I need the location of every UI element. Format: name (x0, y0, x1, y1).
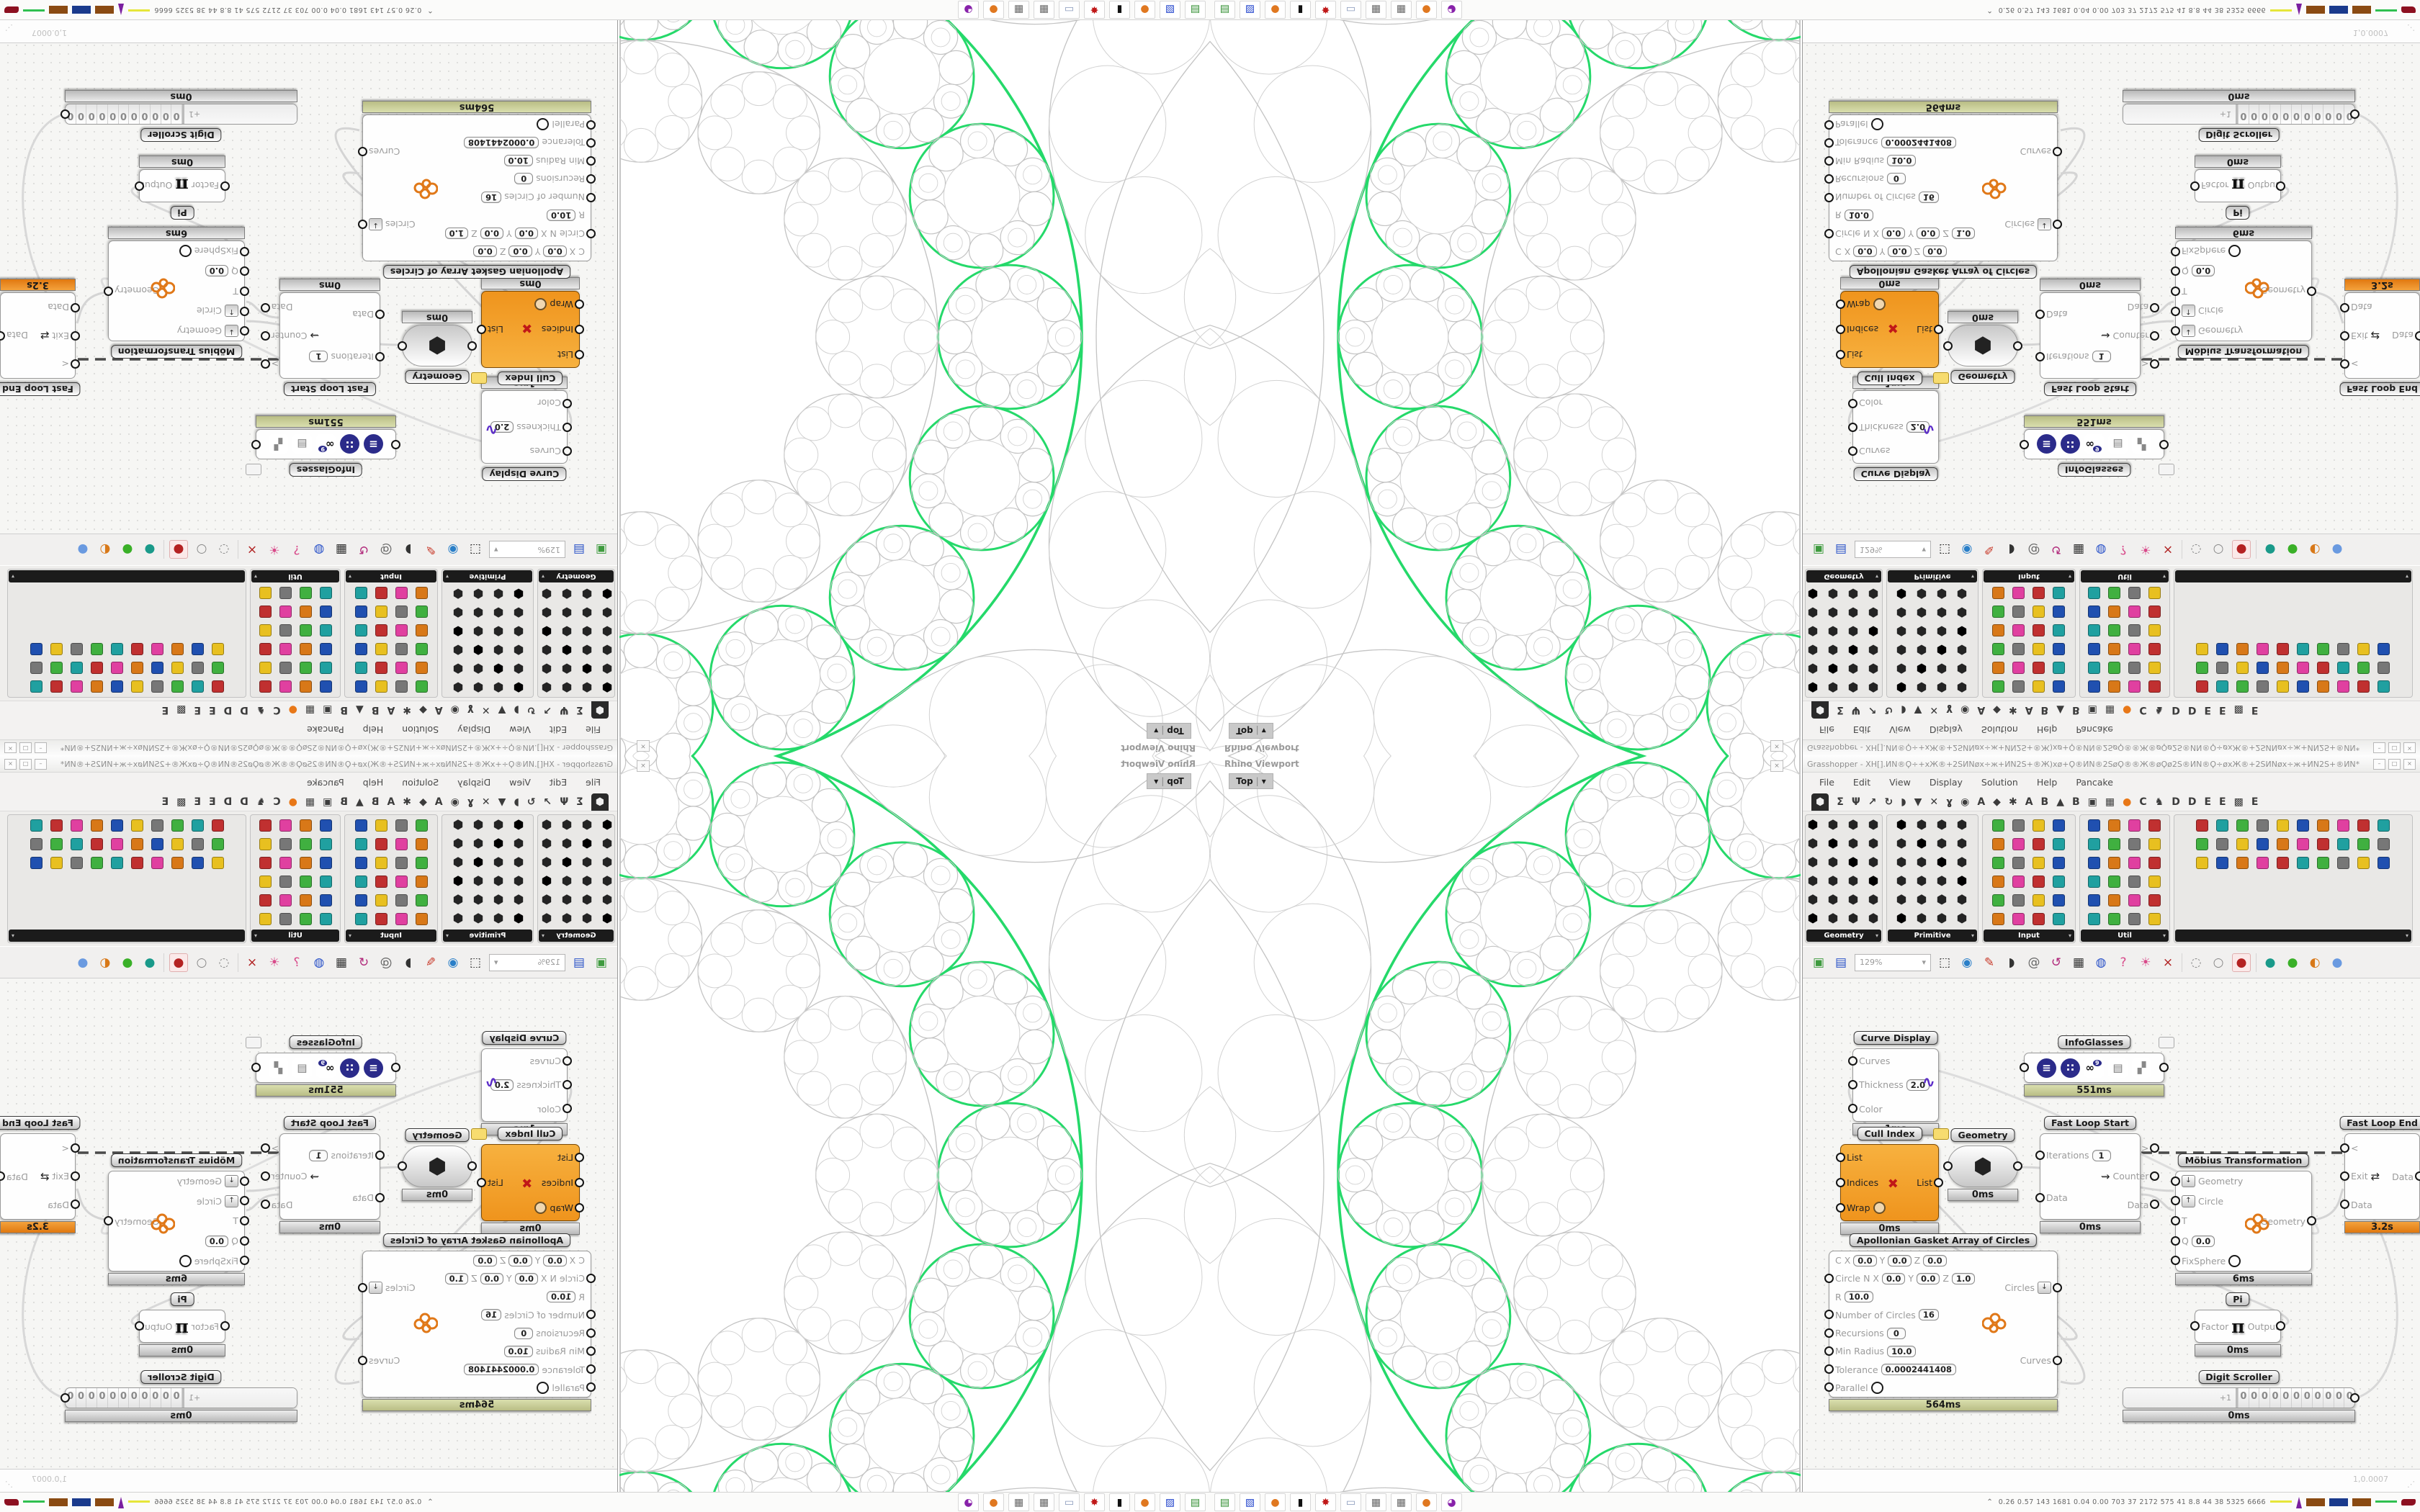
component-icon[interactable] (2009, 854, 2027, 871)
component-icon[interactable]: ⬢ (599, 622, 615, 639)
component-icon[interactable] (48, 816, 66, 834)
component-tab-22[interactable]: D (2172, 793, 2180, 811)
component-icon[interactable] (2085, 854, 2102, 871)
component-icon[interactable] (129, 678, 146, 696)
component-icon[interactable]: ⬢ (1824, 641, 1842, 658)
component-icon[interactable]: ⬢ (449, 678, 467, 696)
menu-help[interactable]: Help (2027, 777, 2067, 788)
taskbar-firefox-icon[interactable]: ● (1134, 1, 1155, 19)
component-icon[interactable]: ⬢ (558, 678, 575, 696)
input-grip[interactable] (2171, 1216, 2180, 1225)
find-icon[interactable]: ◍ (2092, 954, 2110, 971)
component-icon[interactable] (210, 660, 227, 677)
component-icon[interactable] (28, 816, 45, 834)
component-icon[interactable]: ⬢ (490, 641, 507, 658)
component-tab-12[interactable]: ✱ (403, 701, 411, 719)
scroller-digit[interactable]: 0 (2291, 104, 2302, 124)
param-value[interactable]: 0.0 (1917, 1273, 1940, 1284)
component-icon[interactable] (413, 622, 431, 639)
component-tab-1[interactable]: Σ (576, 793, 583, 811)
taskbar-firefox-icon[interactable]: ● (1134, 1493, 1155, 1511)
input-grip[interactable] (586, 1274, 596, 1283)
node-label[interactable]: InfoGlasses (290, 463, 362, 477)
component-icon[interactable]: ⬢ (1805, 622, 1821, 639)
component-icon[interactable] (353, 641, 370, 658)
node-label[interactable]: Pi (2226, 206, 2249, 220)
component-icon[interactable]: ⬢ (1865, 835, 1882, 852)
param-value[interactable]: 0 (1887, 173, 1906, 184)
component-icon[interactable] (2274, 660, 2291, 677)
component-icon[interactable]: ⬢ (558, 816, 575, 834)
boolean-toggle[interactable] (537, 118, 549, 130)
component-icon[interactable] (2085, 678, 2102, 696)
node-mobius[interactable]: Möbius Transformation↓Geometry↑CircleTQ0… (108, 1171, 245, 1272)
output-grip[interactable] (2307, 287, 2316, 296)
node-body[interactable]: <Exit⇄DataData (0, 1133, 76, 1220)
component-icon[interactable] (373, 660, 390, 677)
component-icon[interactable] (68, 678, 86, 696)
component-icon[interactable]: ⬢ (510, 585, 527, 602)
component-icon[interactable] (2050, 854, 2067, 871)
projector-icon[interactable]: ◗ (400, 541, 417, 559)
component-icon[interactable] (189, 678, 207, 696)
component-icon[interactable]: ⬢ (490, 622, 507, 639)
component-tab-12[interactable]: ✱ (2009, 701, 2017, 719)
input-grip[interactable] (71, 1171, 80, 1181)
component-tab-6[interactable]: ▼ (1914, 701, 1922, 719)
component-icon[interactable]: ⬢ (1953, 641, 1971, 658)
node-pi[interactable]: PiFactorπOutput0ms (2195, 1310, 2281, 1343)
output-grip[interactable] (398, 341, 407, 351)
node-body[interactable]: C X0.0Y0.0Z0.0CircleN X0.0Y0.0Z1.0R10.0N… (1829, 114, 2058, 261)
param-value[interactable]: 16 (481, 1309, 501, 1320)
component-icon[interactable] (2125, 641, 2143, 658)
component-icon[interactable] (297, 585, 315, 602)
input-grip[interactable] (2171, 247, 2180, 256)
node-mobius[interactable]: Möbius Transformation↓Geometry↑CircleTQ0… (108, 240, 245, 341)
component-icon[interactable] (2105, 816, 2123, 834)
component-tab-8[interactable]: ɣ (1946, 701, 1953, 719)
output-grip[interactable] (358, 220, 367, 230)
component-icon[interactable]: ⬢ (538, 603, 555, 621)
component-icon[interactable] (2314, 835, 2331, 852)
puzzle-icon[interactable]: ▞ (269, 435, 288, 454)
component-icon[interactable]: ⬢ (1845, 835, 1862, 852)
chevron-down-icon[interactable]: ▾ (1875, 573, 1878, 580)
package-icon[interactable]: ? (2115, 954, 2132, 971)
component-icon[interactable] (28, 854, 45, 871)
component-icon[interactable] (129, 835, 146, 852)
node-fast-loop-end[interactable]: Fast Loop End<Exit⇄DataData3.2s (2344, 1133, 2420, 1220)
component-icon[interactable]: ⬢ (470, 873, 487, 890)
component-icon[interactable] (297, 678, 315, 696)
component-icon[interactable]: ⬢ (538, 641, 555, 658)
gha-icon[interactable]: ↺ (2048, 541, 2065, 559)
component-icon[interactable] (1989, 641, 2007, 658)
input-grip[interactable] (240, 1216, 249, 1225)
gha-icon[interactable]: ↺ (2048, 954, 2065, 971)
component-icon[interactable] (1989, 585, 2007, 602)
component-icon[interactable] (318, 603, 335, 621)
menu-edit[interactable]: Edit (1844, 725, 1880, 736)
component-icon[interactable] (2050, 622, 2067, 639)
component-icon[interactable] (277, 585, 295, 602)
component-icon[interactable] (2105, 873, 2123, 890)
component-icon[interactable] (2294, 816, 2311, 834)
close-icon[interactable]: × (2403, 743, 2416, 754)
component-icon[interactable]: ⬢ (1913, 873, 1930, 890)
input-grip[interactable] (2190, 1321, 2200, 1331)
node-label[interactable]: Fast Loop End (0, 382, 81, 396)
component-icon[interactable] (277, 854, 295, 871)
node-fast-loop-end[interactable]: Fast Loop End<Exit⇄DataData3.2s (2344, 292, 2420, 379)
node-cull-index[interactable]: Cull IndexListIndicesWrapList✖0ms (1840, 291, 1939, 368)
component-tab-4[interactable]: ↻ (527, 701, 536, 719)
input-grip[interactable] (2340, 1200, 2349, 1209)
component-icon[interactable] (2085, 873, 2102, 890)
scroller-digit[interactable]: 0 (151, 1388, 161, 1408)
node-label[interactable]: Fast Loop Start (284, 382, 376, 396)
scroller-digit[interactable]: 0 (151, 104, 161, 124)
component-icon[interactable] (318, 641, 335, 658)
component-icon[interactable] (353, 873, 370, 890)
component-icon[interactable] (189, 641, 207, 658)
component-tab-11[interactable]: ◆ (1993, 701, 2001, 719)
component-icon[interactable]: ⬢ (558, 873, 575, 890)
input-grip[interactable] (467, 1161, 477, 1171)
component-icon[interactable] (210, 641, 227, 658)
param-value[interactable]: 0.0 (1853, 1255, 1876, 1266)
component-icon[interactable]: ⬢ (470, 816, 487, 834)
param-value[interactable]: 0.0 (473, 246, 496, 257)
param-value[interactable]: 0.0 (480, 228, 503, 239)
component-icon[interactable]: ⬢ (449, 622, 467, 639)
node-body[interactable]: ≡∷∞9▤▞ (2024, 1053, 2164, 1083)
expression-button[interactable]: ↑ (225, 1195, 238, 1207)
component-icon[interactable] (318, 678, 335, 696)
component-icon[interactable] (413, 816, 431, 834)
component-icon[interactable]: ⬢ (599, 641, 615, 658)
component-icon[interactable] (2050, 660, 2067, 677)
node-body[interactable]: <Exit⇄DataData (2344, 292, 2420, 379)
expression-button[interactable]: ↓ (2182, 1175, 2195, 1187)
component-icon[interactable] (297, 910, 315, 927)
component-tab-5[interactable]: ◗ (514, 701, 519, 719)
component-icon[interactable] (393, 622, 411, 639)
component-icon[interactable] (2233, 854, 2251, 871)
menu-file[interactable]: File (1810, 777, 1844, 788)
component-icon[interactable]: ⬢ (538, 873, 555, 890)
component-tab-26[interactable]: ▩ (176, 701, 186, 719)
component-icon[interactable] (2254, 678, 2271, 696)
component-tab-14[interactable]: B (372, 701, 380, 719)
node-label[interactable]: Fast Loop End (2339, 382, 2420, 396)
component-icon[interactable]: ⬢ (1805, 678, 1821, 696)
component-icon[interactable] (257, 910, 274, 927)
component-icon[interactable]: ⬢ (1845, 910, 1862, 927)
chevron-down-icon[interactable]: ▾ (542, 932, 544, 939)
output-grip[interactable] (2415, 331, 2420, 341)
param-value[interactable]: 0.0 (543, 1255, 566, 1266)
component-icon[interactable]: ⬢ (1933, 641, 1950, 658)
component-icon[interactable] (1989, 910, 2007, 927)
scroller-digit[interactable]: 0 (2280, 104, 2291, 124)
menu-view[interactable]: View (1880, 777, 1920, 788)
save-file-icon[interactable]: ▤ (1832, 541, 1850, 559)
node-body[interactable]: +100000000000 (2123, 104, 2355, 125)
component-icon[interactable] (2375, 835, 2392, 852)
component-icon[interactable] (48, 835, 66, 852)
component-icon[interactable] (2146, 854, 2163, 871)
node-body[interactable]: ≡∷∞9▤▞ (256, 429, 396, 459)
node-body[interactable]: ⬢ (402, 1146, 472, 1187)
component-tab-9[interactable]: ◉ (451, 793, 460, 811)
output-grip[interactable] (261, 359, 270, 369)
component-icon[interactable] (1989, 873, 2007, 890)
component-icon[interactable] (2193, 854, 2210, 871)
component-icon[interactable] (2314, 641, 2331, 658)
component-tab-11[interactable]: ◆ (419, 793, 427, 811)
component-icon[interactable] (2354, 660, 2372, 677)
component-icon[interactable] (2375, 854, 2392, 871)
component-icon[interactable] (297, 641, 315, 658)
component-icon[interactable] (2294, 854, 2311, 871)
component-tab-12[interactable]: ✱ (403, 793, 411, 811)
component-icon[interactable] (277, 660, 295, 677)
component-icon[interactable] (373, 603, 390, 621)
component-tab-23[interactable]: D (224, 793, 233, 811)
param-value[interactable]: 10.0 (547, 210, 575, 221)
component-icon[interactable] (277, 873, 295, 890)
component-icon[interactable]: ⬢ (470, 660, 487, 677)
node-body[interactable]: CurvesThickness2.0Color∿ (481, 390, 568, 464)
component-icon[interactable]: ⬢ (1824, 910, 1842, 927)
component-icon[interactable]: ⬢ (1953, 910, 1971, 927)
save-file-icon[interactable]: ▤ (1832, 954, 1850, 971)
component-icon[interactable] (2294, 660, 2311, 677)
component-icon[interactable]: ⬢ (510, 603, 527, 621)
zoom-extents-icon[interactable]: ⬚ (467, 541, 484, 559)
component-icon[interactable]: ⬢ (1913, 910, 1930, 927)
component-icon[interactable]: ⬢ (1865, 891, 1882, 909)
node-label[interactable]: Cull Index (498, 372, 563, 385)
component-icon[interactable] (373, 835, 390, 852)
component-icon[interactable] (393, 660, 411, 677)
node-fast-loop-start[interactable]: Fast Loop StartIterations1Data>⇝CounterD… (279, 1133, 380, 1220)
param-value[interactable]: 1.0 (1952, 1273, 1975, 1284)
warning-balloon-icon[interactable] (471, 1128, 487, 1140)
component-icon[interactable] (318, 585, 335, 602)
output-grip[interactable] (2053, 1356, 2062, 1365)
menu-circle-icon[interactable]: ≡ (2037, 1058, 2056, 1078)
component-icon[interactable] (2334, 678, 2352, 696)
component-icon[interactable] (2125, 678, 2143, 696)
component-icon[interactable] (277, 910, 295, 927)
node-body[interactable]: C X0.0Y0.0Z0.0CircleN X0.0Y0.0Z1.0R10.0N… (362, 114, 591, 261)
viewport-tab-top[interactable]: Top | ▾ (1147, 723, 1191, 739)
component-icon[interactable]: ⬢ (1953, 678, 1971, 696)
node-body[interactable]: C X0.0Y0.0Z0.0CircleN X0.0Y0.0Z1.0R10.0N… (362, 1251, 591, 1398)
input-grip[interactable] (1824, 138, 1834, 148)
taskbar-floppy64-icon[interactable]: ▧ (1240, 1493, 1260, 1511)
zoom-level-select[interactable]: 129%▾ (1855, 541, 1931, 559)
scroller-increment[interactable]: +1 (2123, 104, 2238, 124)
component-icon[interactable] (393, 854, 411, 871)
component-icon[interactable] (373, 910, 390, 927)
minimize-icon[interactable]: – (35, 759, 47, 770)
component-icon[interactable]: ⬢ (1933, 678, 1950, 696)
find-icon[interactable]: ◍ (310, 954, 328, 971)
component-icon[interactable] (149, 660, 166, 677)
node-body[interactable]: C X0.0Y0.0Z0.0CircleN X0.0Y0.0Z1.0R10.0N… (1829, 1251, 2058, 1398)
component-icon[interactable] (2009, 910, 2027, 927)
menu-display[interactable]: Display (1920, 777, 1972, 788)
input-grip[interactable] (2340, 331, 2349, 341)
expression-button[interactable]: ↑ (2182, 1195, 2195, 1207)
chevron-down-icon[interactable]: ▾ (494, 545, 498, 554)
param-value[interactable]: 0.0002441408 (464, 1364, 539, 1375)
menu-file[interactable]: File (576, 725, 610, 736)
projector-icon[interactable]: ◗ (400, 954, 417, 971)
node-digit-scroller[interactable]: Digit Scroller+1000000000000ms (2123, 1387, 2355, 1408)
component-icon[interactable] (48, 854, 66, 871)
component-tab-1[interactable]: Σ (1837, 793, 1844, 811)
chevron-down-icon[interactable]: ▾ (1922, 545, 1926, 554)
node-label[interactable]: Pi (170, 1292, 194, 1306)
component-icon[interactable] (89, 835, 106, 852)
boolean-toggle[interactable] (534, 1202, 547, 1214)
input-grip[interactable] (375, 1151, 385, 1160)
component-icon[interactable]: ⬢ (1805, 835, 1821, 852)
wires-icon[interactable]: ⨯ (2159, 541, 2177, 559)
component-icon[interactable]: ⬢ (470, 910, 487, 927)
boolean-toggle[interactable] (2228, 1255, 2241, 1267)
chevron-down-icon[interactable]: ▾ (12, 932, 14, 939)
scroller-digit[interactable]: 0 (161, 104, 172, 124)
grasshopper-titlebar[interactable]: Grasshopper - XH[].ИN®Ϙ÷+хЖ®+2SИNøх÷ж+ИN… (1803, 739, 2420, 756)
node-label[interactable]: Fast Loop End (0, 1116, 81, 1130)
taskbar-gear-flower-icon[interactable]: ✸ (1315, 1, 1336, 19)
node-label[interactable]: Pi (2226, 1292, 2249, 1306)
component-icon[interactable] (149, 854, 166, 871)
component-icon[interactable]: ⬢ (1845, 660, 1862, 677)
component-icon[interactable] (353, 603, 370, 621)
param-value[interactable]: 10.0 (1845, 1291, 1873, 1302)
output-grip[interactable] (0, 1171, 5, 1181)
scroller-digit[interactable]: 0 (2301, 104, 2312, 124)
component-icon[interactable] (2085, 835, 2102, 852)
sphere-blue-icon[interactable]: ● (74, 541, 91, 559)
component-tab-21[interactable]: ♞ (256, 793, 266, 811)
taskbar-maze-icon[interactable]: ▦ (1366, 1, 1386, 19)
component-icon[interactable] (2105, 660, 2123, 677)
component-icon[interactable] (2146, 641, 2163, 658)
input-grip[interactable] (1848, 423, 1857, 432)
component-icon[interactable]: ⬢ (1845, 622, 1862, 639)
component-icon[interactable] (353, 678, 370, 696)
menu-pancake[interactable]: Pancake (2066, 777, 2123, 788)
screenshot-icon[interactable]: ▦ (2070, 954, 2087, 971)
component-icon[interactable]: ⬢ (470, 585, 487, 602)
scroller-digit[interactable]: 0 (119, 104, 130, 124)
component-icon[interactable]: ⬢ (510, 622, 527, 639)
monitor-caret-icon[interactable]: ⌃ (1986, 1498, 1992, 1506)
menu-edit[interactable]: Edit (540, 777, 576, 788)
node-label[interactable]: Fast Loop Start (2044, 1116, 2136, 1130)
node-digit-scroller[interactable]: Digit Scroller+1000000000000ms (65, 1387, 297, 1408)
grid-icon[interactable]: ∷ (2061, 435, 2080, 454)
drawer-icon[interactable]: ▤ (2108, 435, 2128, 454)
warning-balloon-icon[interactable] (2159, 1037, 2174, 1048)
component-icon[interactable] (373, 585, 390, 602)
scroller-digit[interactable]: 0 (2334, 104, 2344, 124)
component-icon[interactable] (2009, 835, 2027, 852)
node-fast-loop-end[interactable]: Fast Loop End<Exit⇄DataData3.2s (0, 292, 76, 379)
param-value[interactable]: 0 (514, 1328, 533, 1339)
component-icon[interactable]: ⬢ (1933, 854, 1950, 871)
component-icon[interactable] (2213, 835, 2231, 852)
component-icon[interactable]: ⬢ (1953, 835, 1971, 852)
component-icon[interactable] (2233, 660, 2251, 677)
component-icon[interactable]: ⬢ (1933, 873, 1950, 890)
component-icon[interactable] (2030, 835, 2047, 852)
component-icon[interactable] (109, 678, 126, 696)
component-icon[interactable]: ⬢ (1913, 835, 1930, 852)
component-icon[interactable] (297, 854, 315, 871)
component-icon[interactable] (2009, 660, 2027, 677)
component-icon[interactable]: ⬢ (1953, 873, 1971, 890)
component-icon[interactable] (129, 816, 146, 834)
input-grip[interactable] (2171, 266, 2180, 276)
component-icon[interactable]: ⬢ (578, 585, 596, 602)
input-grip[interactable] (2020, 1063, 2029, 1072)
param-value[interactable]: 0 (1887, 1328, 1906, 1339)
component-icon[interactable] (2105, 622, 2123, 639)
component-icon[interactable]: ⬢ (1913, 585, 1930, 602)
component-icon[interactable] (2233, 678, 2251, 696)
component-tab-10[interactable]: A (1977, 793, 1985, 811)
component-tab-7[interactable]: ✕ (482, 701, 490, 719)
input-grip[interactable] (563, 1056, 572, 1066)
component-icon[interactable] (169, 816, 187, 834)
chevron-down-icon[interactable]: ▾ (349, 932, 351, 939)
output-grip[interactable] (261, 1143, 270, 1153)
screenshot-icon[interactable]: ▦ (333, 541, 350, 559)
find-icon[interactable]: ◍ (310, 541, 328, 559)
grasshopper-canvas[interactable]: Curve DisplayCurvesThickness2.0Color∿1ms… (1803, 978, 2420, 1469)
component-icon[interactable]: ⬢ (1824, 678, 1842, 696)
param-value[interactable]: 1.0 (1952, 228, 1975, 239)
component-icon[interactable] (169, 854, 187, 871)
component-icon[interactable] (2085, 816, 2102, 834)
menu-help[interactable]: Help (2027, 725, 2067, 736)
open-file-icon[interactable]: ▣ (593, 541, 610, 559)
output-grip[interactable] (2350, 1393, 2359, 1403)
component-icon[interactable] (68, 816, 86, 834)
component-icon[interactable]: ⬢ (558, 854, 575, 871)
component-icon[interactable]: ⬢ (470, 622, 487, 639)
param-value[interactable]: 0.0 (1888, 1255, 1911, 1266)
component-icon[interactable]: ⬢ (449, 603, 467, 621)
taskbar-gear-flower-icon[interactable]: ✸ (1315, 1493, 1336, 1511)
input-grip[interactable] (1848, 1056, 1857, 1066)
component-tab-10[interactable]: A (435, 701, 443, 719)
component-tab-9[interactable]: ◉ (1960, 793, 1969, 811)
component-icon[interactable] (2294, 678, 2311, 696)
taskbar-maze2-icon[interactable]: ▦ (1008, 1, 1029, 19)
component-icon[interactable] (210, 678, 227, 696)
menu-edit[interactable]: Edit (540, 725, 576, 736)
